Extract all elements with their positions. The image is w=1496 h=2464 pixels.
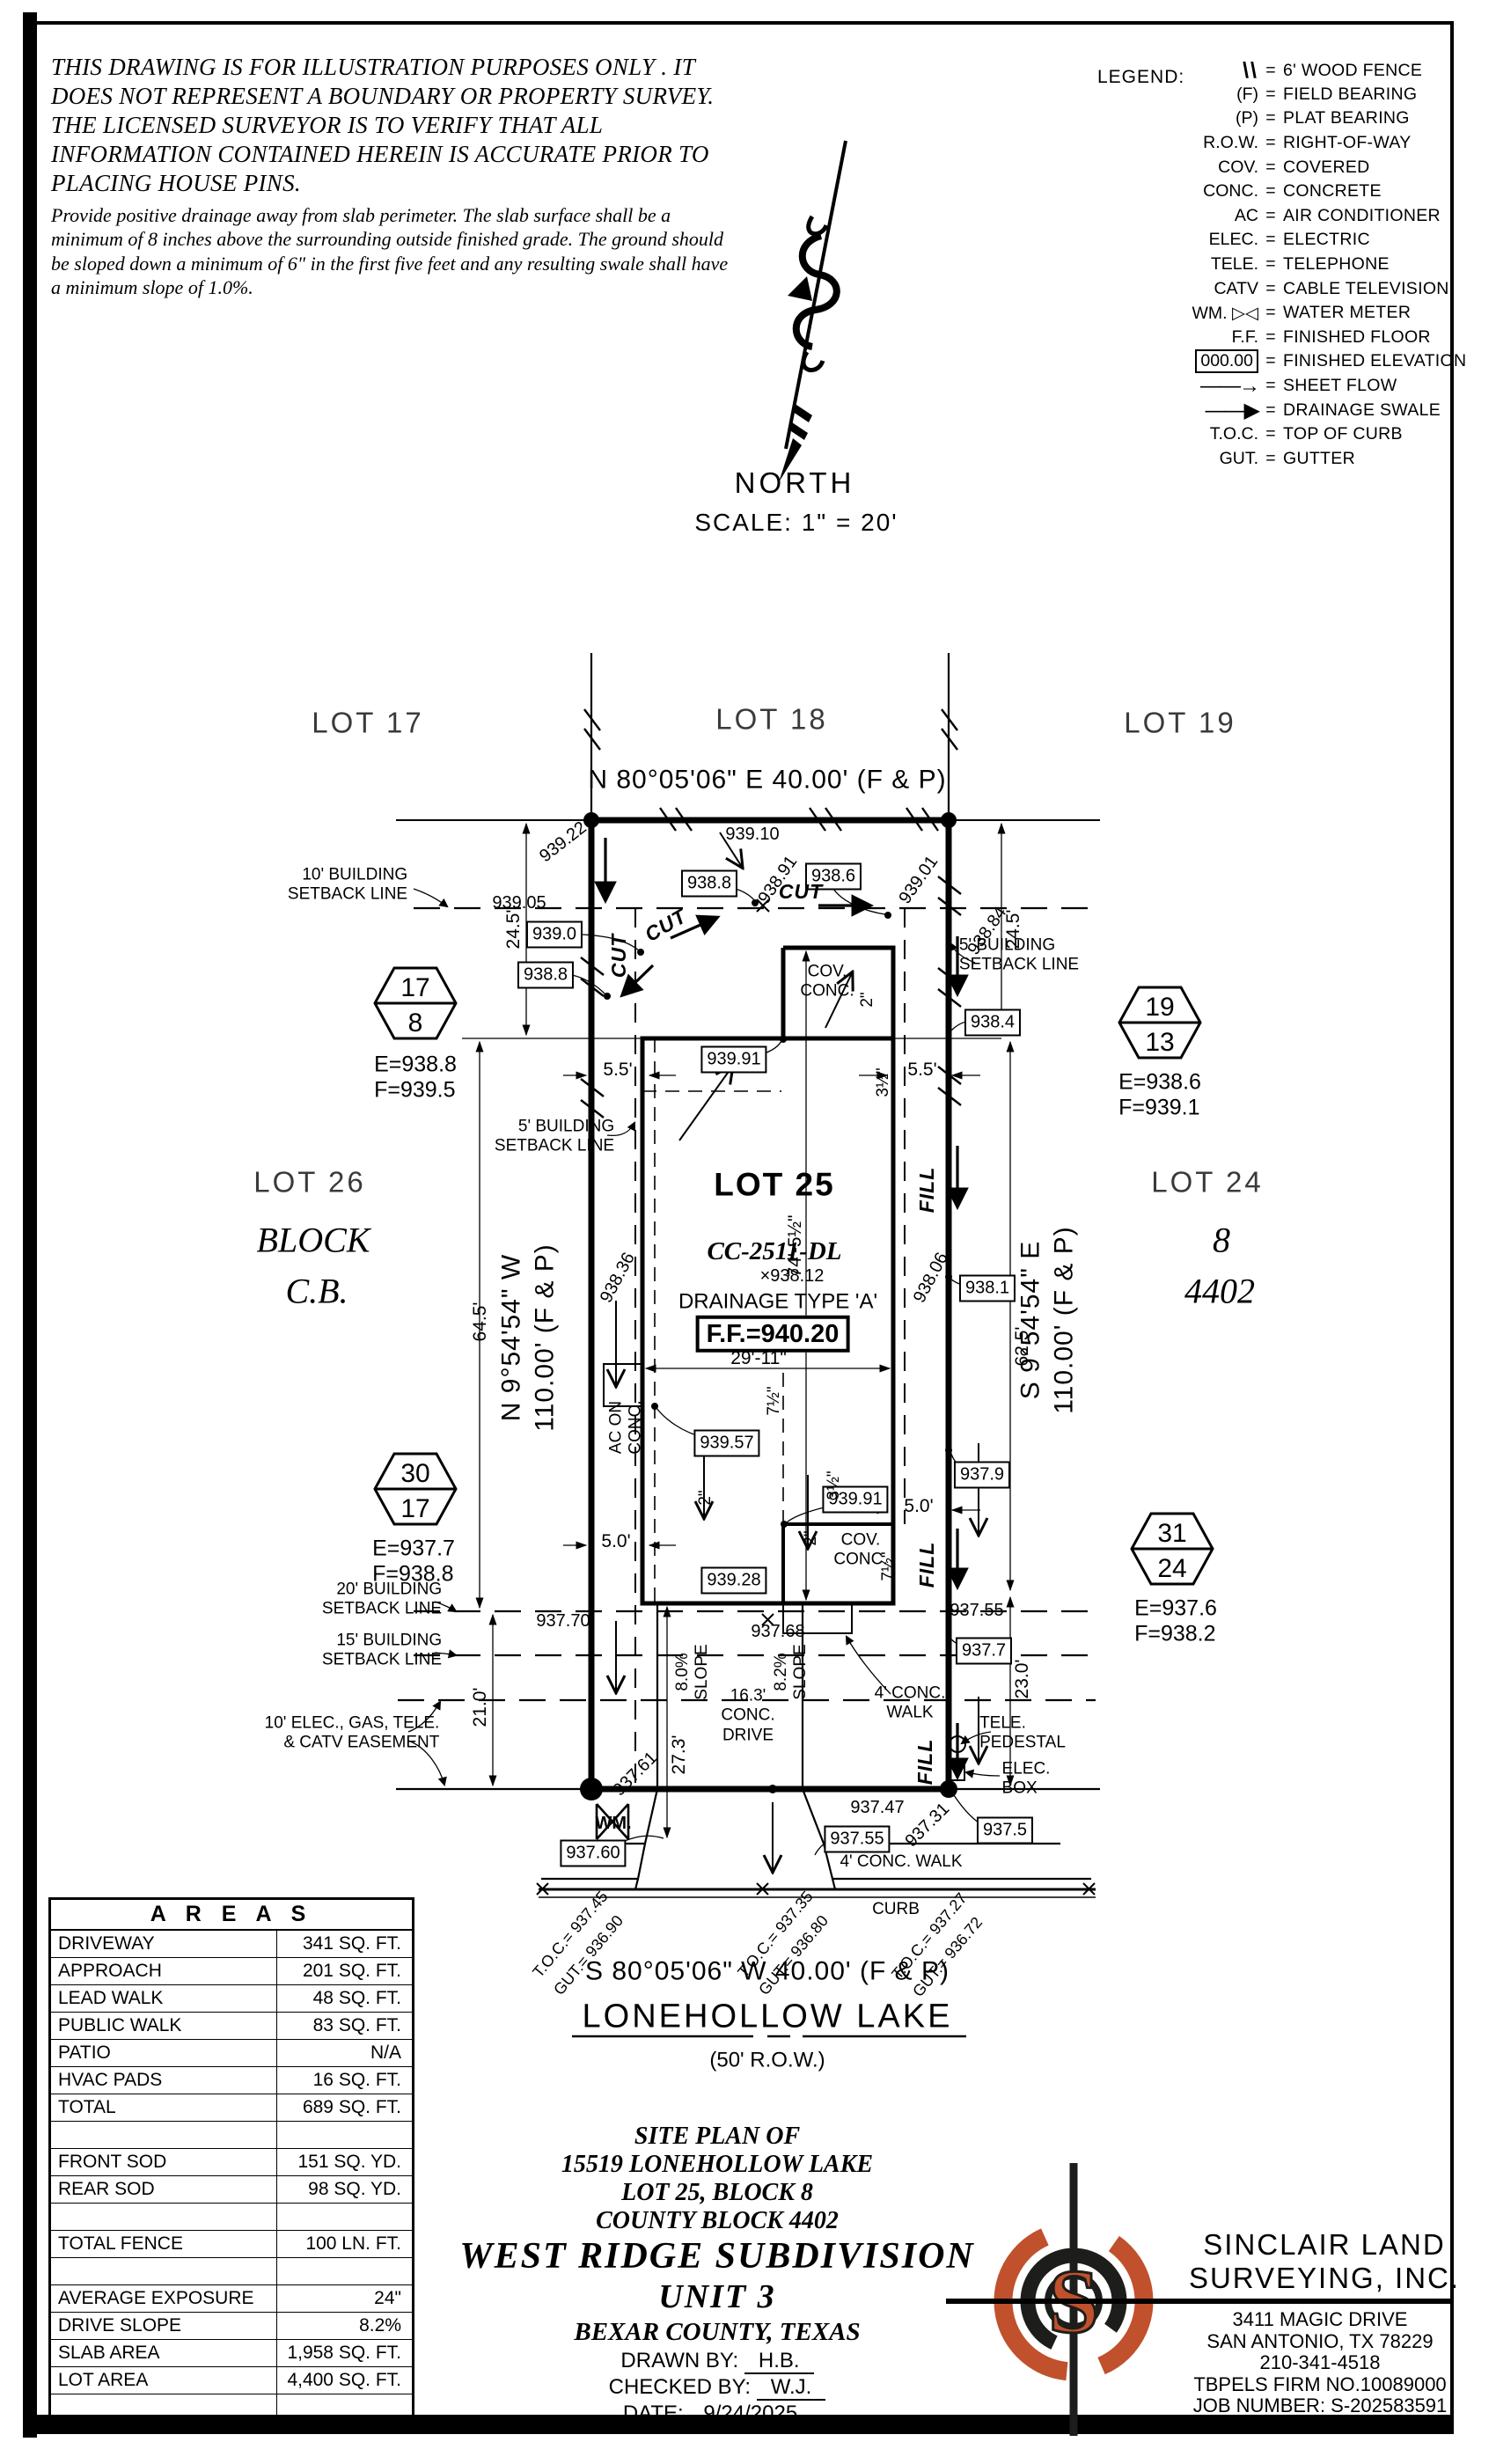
date-value: 9/24/2025 <box>689 2402 811 2427</box>
plan-label: 939.0 <box>526 921 583 949</box>
areas-row-label: APPROACH <box>51 1958 276 1984</box>
title-block: SITE PLAN OF15519 LONEHOLLOW LAKELOT 25,… <box>444 2123 990 2427</box>
plan-label: F.F.=940.20 <box>696 1316 850 1353</box>
title-line: COUNTY BLOCK 4402 <box>444 2207 990 2235</box>
plan-label: 939.22 <box>536 818 590 866</box>
title-line: BEXAR COUNTY, TEXAS <box>444 2316 990 2348</box>
plan-label: COV. CONC. <box>800 963 854 1002</box>
plan-label: 938.36 <box>597 1250 639 1307</box>
title-line: LOT 25, BLOCK 8 <box>444 2179 990 2207</box>
plan-label: 939.10 <box>725 825 779 844</box>
areas-row: APPROACH 201 SQ. FT. <box>51 1958 412 1985</box>
plan-label: 937.5 <box>977 1817 1033 1844</box>
plan-label: CUT <box>608 934 631 978</box>
areas-row-value: 201 SQ. FT. <box>276 1958 407 1984</box>
checked-by-value: W.J. <box>757 2375 826 2401</box>
plan-label: LOT 25 <box>714 1166 834 1202</box>
plan-label: S 9°54'54" E 110.00' (F & P) <box>1015 1226 1081 1414</box>
plan-label: CUT <box>642 905 691 946</box>
company-divider <box>946 2299 1450 2304</box>
plan-label: 7½" <box>879 1551 898 1580</box>
plan-label: ELEC. BOX <box>1002 1760 1051 1800</box>
plan-label: (50' R.O.W.) <box>709 2050 825 2073</box>
plan-label: 937.68 <box>751 1622 804 1641</box>
areas-row-label: TOTAL FENCE <box>51 2231 276 2257</box>
plan-label: C.B. <box>285 1272 348 1312</box>
date-label: DATE: <box>623 2402 684 2425</box>
areas-table: A R E A S DRIVEWAY 341 SQ. FT. APPROACH … <box>48 1897 414 2424</box>
areas-row: TOTAL FENCE 100 LN. FT. <box>51 2231 412 2258</box>
areas-title: A R E A S <box>51 1900 412 1931</box>
areas-row-value: 16 SQ. FT. <box>276 2067 407 2094</box>
plan-label: CC-2511-DL <box>707 1237 841 1265</box>
areas-row-value <box>276 2204 407 2230</box>
plan-label: 5.5' <box>603 1060 632 1081</box>
company-name-line2: SURVEYING, INC. <box>1179 2262 1470 2295</box>
plan-label: E=937.6 F=938.2 <box>1134 1595 1217 1646</box>
plan-label: LOT 24 <box>1151 1167 1263 1199</box>
plan-label: 937.60 <box>560 1840 626 1867</box>
areas-row: TOTAL 689 SQ. FT. <box>51 2094 412 2122</box>
company-city: SAN ANTONIO, TX 78229 <box>1170 2331 1470 2353</box>
areas-row-label <box>51 2122 276 2148</box>
plan-label: 5.0' <box>601 1531 630 1552</box>
plan-label: E=938.8 F=939.5 <box>374 1052 457 1103</box>
areas-row: FRONT SOD 151 SQ. YD. <box>51 2149 412 2176</box>
plan-label: 21.0' <box>470 1688 491 1727</box>
areas-row-value: 83 SQ. FT. <box>276 2013 407 2039</box>
areas-row: DRIVE SLOPE 8.2% <box>51 2313 412 2340</box>
areas-row: SLAB AREA 1,958 SQ. FT. <box>51 2340 412 2367</box>
plan-label: 8 <box>1213 1221 1230 1261</box>
plan-label: N 80°05'06" E 40.00' (F & P) <box>588 763 946 796</box>
areas-row <box>51 2258 412 2285</box>
plan-label: LOT 18 <box>715 704 827 737</box>
plan-label: 937.47 <box>850 1798 904 1817</box>
plan-label: 7½" <box>765 1386 784 1415</box>
plan-label: 938.06 <box>910 1250 952 1307</box>
areas-row-label: TOTAL <box>51 2094 276 2121</box>
title-line: 15519 LONEHOLLOW LAKE <box>444 2151 990 2179</box>
plan-label: 2" <box>696 1490 715 1505</box>
areas-row-value: 689 SQ. FT. <box>276 2094 407 2121</box>
plan-label: FILL <box>916 1167 939 1214</box>
plan-label: 939.91 <box>700 1046 766 1074</box>
title-line: UNIT 3 <box>444 2277 990 2316</box>
plan-label: 15' BUILDING SETBACK LINE <box>322 1632 442 1671</box>
areas-row: REAR SOD 98 SQ. YD. <box>51 2176 412 2204</box>
plan-label: DRAINAGE TYPE 'A' <box>678 1291 877 1315</box>
plan-label: 5.0' <box>904 1496 933 1517</box>
plan-label: 939.28 <box>700 1567 766 1595</box>
plan-label: 3½" <box>874 1067 893 1096</box>
areas-row-label: AVERAGE EXPOSURE <box>51 2285 276 2312</box>
company-firm-number: TBPELS FIRM NO.10089000 <box>1170 2374 1470 2396</box>
plan-label: 2" <box>858 992 877 1007</box>
areas-row-label: PUBLIC WALK <box>51 2013 276 2039</box>
areas-row: PUBLIC WALK 83 SQ. FT. <box>51 2013 412 2040</box>
areas-row <box>51 2122 412 2149</box>
areas-row-label: SLAB AREA <box>51 2340 276 2366</box>
company-phone: 210-341-4518 <box>1170 2352 1470 2374</box>
areas-row-label: FRONT SOD <box>51 2149 276 2175</box>
plan-label: 23.0' <box>1012 1660 1033 1699</box>
plan-label: 4' CONC. WALK <box>840 1852 962 1872</box>
plan-label: SLOPE <box>693 1644 712 1699</box>
plan-label: 5' BUILDING SETBACK LINE <box>495 1118 614 1157</box>
plan-label: 10' ELEC., GAS, TELE. & CATV EASEMENT <box>265 1714 440 1754</box>
checked-by-row: CHECKED BY: W.J. <box>444 2374 990 2401</box>
areas-row-value: 4,400 SQ. FT. <box>276 2367 407 2394</box>
drawn-by-value: H.B. <box>744 2349 814 2374</box>
plan-label: 62.5' <box>1012 1327 1033 1367</box>
plan-label: 74'-5½" <box>785 1214 806 1277</box>
company-job-number: JOB NUMBER: S-202583591 <box>1170 2395 1470 2417</box>
areas-row: DRIVEWAY 341 SQ. FT. <box>51 1931 412 1958</box>
areas-row-label <box>51 2204 276 2230</box>
areas-row-value <box>276 2122 407 2148</box>
areas-row-label: LEAD WALK <box>51 1985 276 2012</box>
plan-label: 938.8 <box>517 962 574 989</box>
areas-row-label <box>51 2258 276 2284</box>
company-name: SINCLAIR LAND SURVEYING, INC. <box>1179 2228 1470 2295</box>
areas-row-label: DRIVE SLOPE <box>51 2313 276 2339</box>
plan-label: E=937.7 F=938.8 <box>372 1536 455 1587</box>
plan-label: 8.2% <box>772 1653 791 1690</box>
areas-row-label: PATIO <box>51 2040 276 2066</box>
plan-label: 4' CONC. WALK <box>875 1684 946 1724</box>
plan-label: 937.31 <box>901 1799 953 1851</box>
plan-label: LOT 26 <box>253 1167 365 1199</box>
areas-row-value: 98 SQ. YD. <box>276 2176 407 2203</box>
plan-label: 938.1 <box>959 1275 1016 1302</box>
plan-label: 29'-11" <box>730 1348 787 1369</box>
company-street: 3411 MAGIC DRIVE <box>1170 2309 1470 2331</box>
areas-row-value: 48 SQ. FT. <box>276 1985 407 2012</box>
company-name-line1: SINCLAIR LAND <box>1179 2228 1470 2262</box>
plan-label: BLOCK <box>257 1221 370 1261</box>
drawn-by-label: DRAWN BY: <box>620 2349 738 2372</box>
drawn-by-row: DRAWN BY: H.B. <box>444 2348 990 2374</box>
plan-label: FILL <box>916 1542 939 1588</box>
plan-label: 16.3' CONC. DRIVE <box>721 1686 774 1745</box>
plan-label: 64.5' <box>470 1302 491 1342</box>
areas-row-label: REAR SOD <box>51 2176 276 2203</box>
plan-label: 27.3' <box>669 1735 690 1775</box>
date-row: DATE: 9/24/2025 <box>444 2401 990 2427</box>
areas-row: LEAD WALK 48 SQ. FT. <box>51 1985 412 2013</box>
plan-label: LONEHOLLOW LAKE <box>583 1998 953 2036</box>
plan-label: AC ON CONC. <box>607 1400 647 1454</box>
plan-label: 937.7 <box>956 1638 1012 1665</box>
plan-label: S 80°05'06" W 40.00' (F & P) <box>585 1954 950 1988</box>
areas-row-label: HVAC PADS <box>51 2067 276 2094</box>
plan-label: CURB <box>872 1900 920 1919</box>
areas-row-value: 8.2% <box>276 2313 407 2339</box>
plan-label: 2" <box>802 1530 821 1545</box>
areas-row-value: 24" <box>276 2285 407 2312</box>
plan-label: E=938.6 F=939.1 <box>1118 1069 1201 1120</box>
areas-row-label: DRIVEWAY <box>51 1931 276 1957</box>
plan-label: FILL <box>914 1739 937 1786</box>
areas-row <box>51 2204 412 2231</box>
plan-label: LOT 17 <box>312 708 423 740</box>
plan-label: 937.9 <box>954 1462 1010 1489</box>
plan-label: 937.61 <box>609 1748 661 1800</box>
plan-label: 8.0% <box>673 1653 693 1690</box>
plan-label: 4402 <box>1184 1272 1255 1312</box>
plan-label: CUT <box>779 881 823 904</box>
plan-label: 3½" <box>825 1470 844 1500</box>
checked-by-label: CHECKED BY: <box>609 2375 751 2399</box>
plan-label: 937.55 <box>950 1601 1003 1620</box>
areas-row-value: 1,958 SQ. FT. <box>276 2340 407 2366</box>
areas-row-value: 100 LN. FT. <box>276 2231 407 2257</box>
plan-label: LOT 19 <box>1124 708 1236 740</box>
plan-label: TELE. PEDESTAL <box>979 1714 1066 1754</box>
areas-row <box>51 2394 412 2421</box>
plan-label: N 9°54'54" W 110.00' (F & P) <box>495 1243 561 1432</box>
plan-label: 20' BUILDING SETBACK LINE <box>322 1580 442 1620</box>
areas-row-value: N/A <box>276 2040 407 2066</box>
plan-label: 939.01 <box>895 853 942 908</box>
areas-row-label <box>51 2394 276 2421</box>
plan-label: 5' BUILDING SETBACK LINE <box>959 936 1079 976</box>
title-line: SITE PLAN OF <box>444 2123 990 2151</box>
areas-row-value: 151 SQ. YD. <box>276 2149 407 2175</box>
areas-row-label: LOT AREA <box>51 2367 276 2394</box>
plan-label: WM. <box>595 1814 631 1833</box>
survey-sheet: THIS DRAWING IS FOR ILLUSTRATION PURPOSE… <box>0 0 1496 2464</box>
title-line: WEST RIDGE SUBDIVISION <box>444 2235 990 2277</box>
plan-label: 24.5' <box>503 910 524 950</box>
company-address: 3411 MAGIC DRIVE SAN ANTONIO, TX 78229 2… <box>1170 2309 1470 2417</box>
areas-row-value: 341 SQ. FT. <box>276 1931 407 1957</box>
areas-row: PATIO N/A <box>51 2040 412 2067</box>
plan-label: 938.4 <box>964 1009 1021 1037</box>
areas-row: LOT AREA 4,400 SQ. FT. <box>51 2367 412 2394</box>
plan-label: 938.8 <box>681 870 737 898</box>
plan-label: 937.70 <box>536 1611 590 1631</box>
plan-label: 937.55 <box>824 1826 890 1853</box>
areas-row-value <box>276 2394 407 2421</box>
areas-row: HVAC PADS 16 SQ. FT. <box>51 2067 412 2094</box>
plan-label: SLOPE <box>791 1644 810 1699</box>
areas-row-value <box>276 2258 407 2284</box>
plan-label: 939.57 <box>693 1430 759 1457</box>
plan-label: 10' BUILDING SETBACK LINE <box>288 866 407 906</box>
areas-row: AVERAGE EXPOSURE 24" <box>51 2285 412 2313</box>
plan-label: 5.5' <box>907 1060 936 1081</box>
